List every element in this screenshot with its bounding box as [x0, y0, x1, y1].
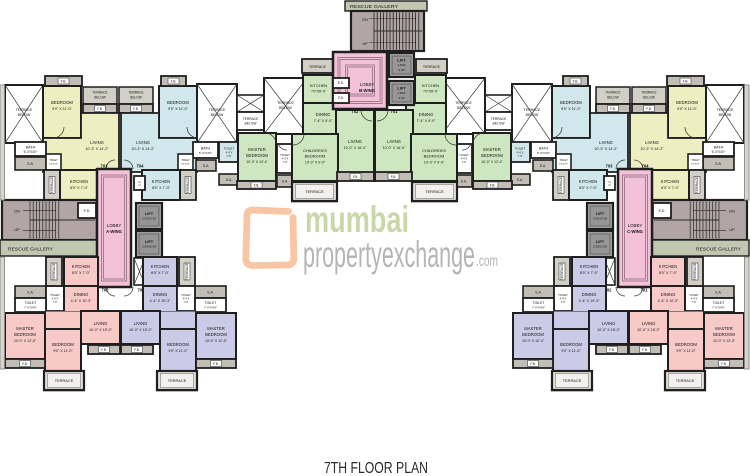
- svg-text:E.D.: E.D.: [338, 81, 344, 85]
- svg-text:DINING: DINING: [74, 292, 89, 297]
- svg-text:10'-0" X 12'-0": 10'-0" X 12'-0": [713, 339, 736, 343]
- svg-text:BELOW: BELOW: [607, 96, 619, 100]
- svg-text:UP: UP: [362, 42, 368, 46]
- svg-text:CHILDREN'S: CHILDREN'S: [422, 148, 446, 153]
- svg-text:7'-0"X4'0": 7'-0"X4'0": [204, 306, 217, 310]
- svg-text:KITCHEN: KITCHEN: [70, 179, 88, 184]
- svg-text:TERRACE: TERRACE: [128, 91, 143, 95]
- svg-text:7'-6": 7'-6": [692, 301, 697, 304]
- svg-text:TERRACE: TERRACE: [186, 176, 190, 194]
- svg-text:UP: UP: [729, 228, 735, 232]
- svg-text:4'-4" X 10'-3": 4'-4" X 10'-3": [71, 299, 92, 303]
- svg-text:propertyexchange: propertyexchange: [303, 234, 475, 275]
- svg-text:10'-0" X 12'-4": 10'-0" X 12'-4": [481, 160, 503, 164]
- svg-text:8'0" X 7'-0": 8'0" X 7'-0": [580, 271, 599, 275]
- svg-text:KITCHEN: KITCHEN: [580, 264, 598, 269]
- svg-text:S.A.: S.A.: [535, 290, 542, 294]
- svg-text:DINING: DINING: [582, 292, 597, 297]
- svg-text:TERRACE: TERRACE: [52, 262, 56, 280]
- svg-text:5'-0"X4'0": 5'-0"X4'0": [537, 151, 550, 155]
- svg-text:7'-6": 7'-6": [462, 161, 467, 164]
- svg-text:LOBBY: LOBBY: [360, 82, 375, 87]
- svg-text:4'-6"X: 4'-6"X: [226, 150, 233, 154]
- svg-text:F.B.: F.B.: [530, 362, 536, 366]
- svg-text:S.A.: S.A.: [282, 179, 288, 183]
- svg-text:7'-6": 7'-6": [561, 301, 566, 304]
- svg-text:LIFT: LIFT: [596, 211, 605, 216]
- svg-text:LIVING: LIVING: [599, 140, 613, 145]
- svg-text:MASTER: MASTER: [483, 147, 500, 152]
- svg-text:TERRACE: TERRACE: [305, 189, 324, 194]
- svg-text:BEDROOM: BEDROOM: [14, 332, 36, 337]
- svg-text:7'-0"X4'0": 7'-0"X4'0": [712, 306, 725, 310]
- svg-text:TERRACE: TERRACE: [309, 65, 327, 69]
- svg-text:F.B.: F.B.: [573, 79, 579, 83]
- svg-text:10'-0" X 15'-0": 10'-0" X 15'-0": [637, 328, 660, 332]
- svg-text:5'-0"X4'0": 5'-0"X4'0": [712, 150, 726, 154]
- svg-text:S.A.: S.A.: [715, 290, 722, 294]
- svg-text:F.B.: F.B.: [61, 79, 67, 83]
- svg-text:TERRACE: TERRACE: [717, 108, 734, 112]
- svg-text:704: 704: [642, 164, 650, 169]
- svg-text:MASTER: MASTER: [248, 147, 265, 152]
- svg-text:10'-0" X 15'-0": 10'-0" X 15'-0": [89, 328, 112, 332]
- svg-text:DINING: DINING: [153, 292, 168, 297]
- svg-text:LIFT: LIFT: [397, 58, 406, 63]
- svg-text:LIFT: LIFT: [145, 239, 154, 244]
- svg-text:10'-3" X 14'-2": 10'-3" X 14'-2": [131, 147, 155, 151]
- svg-text:TOILET: TOILET: [181, 159, 190, 162]
- svg-text:BELOW: BELOW: [245, 121, 258, 125]
- svg-text:KITCHEN: KITCHEN: [152, 179, 170, 184]
- svg-text:F.B.: F.B.: [609, 348, 615, 352]
- svg-text:5'-0"X4'0": 5'-0"X4'0": [24, 150, 38, 154]
- svg-text:KITCHEN: KITCHEN: [72, 264, 90, 269]
- svg-text:7'-4" X 9'-0": 7'-4" X 9'-0": [314, 119, 333, 123]
- svg-text:TERRACE: TERRACE: [641, 91, 656, 95]
- svg-text:TOILET: TOILET: [25, 301, 37, 305]
- svg-text:4'-4" X 10'-3": 4'-4" X 10'-3": [150, 299, 171, 303]
- svg-text:10'-3" X 14'-2": 10'-3" X 14'-2": [640, 147, 664, 151]
- svg-text:F.B.: F.B.: [254, 183, 260, 187]
- svg-text:702: 702: [102, 288, 110, 293]
- svg-text:7'-4" X 9'-0": 7'-4" X 9'-0": [417, 119, 436, 123]
- svg-text:9'0" X 11'-0": 9'0" X 11'-0": [561, 349, 581, 353]
- svg-text:10'-0" X 12'-4": 10'-0" X 12'-4": [246, 160, 268, 164]
- svg-text:BEDROOM: BEDROOM: [481, 153, 503, 158]
- svg-text:10'-3" X 14'-2": 10'-3" X 14'-2": [594, 147, 618, 151]
- svg-text:TERRACE: TERRACE: [92, 91, 107, 95]
- svg-text:F.B.: F.B.: [353, 175, 359, 179]
- svg-text:S.A.: S.A.: [27, 162, 34, 166]
- svg-text:LIVING: LIVING: [387, 139, 401, 144]
- svg-text:10'-0" X 12'-0": 10'-0" X 12'-0": [205, 339, 228, 343]
- svg-text:9'0" X 11'-0": 9'0" X 11'-0": [677, 107, 697, 111]
- svg-text:9'0" X 11'-0": 9'0" X 11'-0": [168, 107, 188, 111]
- svg-text:F.B.: F.B.: [97, 107, 103, 111]
- svg-text:TOILET: TOILET: [224, 146, 235, 150]
- svg-text:DINING: DINING: [419, 112, 434, 117]
- svg-text:LIFT: LIFT: [596, 239, 605, 244]
- svg-text:7'0"X8'-0": 7'0"X8'-0": [311, 90, 327, 94]
- svg-text:TERRACE: TERRACE: [16, 108, 33, 112]
- svg-text:S.A.: S.A.: [461, 179, 467, 183]
- svg-text:BELOW: BELOW: [493, 121, 506, 125]
- svg-text:10'-0" X 12'-0": 10'-0" X 12'-0": [522, 339, 545, 343]
- svg-text:TERRACE: TERRACE: [55, 378, 74, 383]
- svg-text:BELOW: BELOW: [526, 113, 539, 117]
- svg-text:F.B.: F.B.: [134, 348, 140, 352]
- svg-text:10'-0" X 15'-0": 10'-0" X 15'-0": [129, 328, 152, 332]
- svg-text:BEDROOM: BEDROOM: [51, 100, 73, 105]
- svg-text:S.A.: S.A.: [715, 162, 722, 166]
- svg-text:7'-0"X4'0": 7'-0"X4'0": [24, 306, 37, 310]
- svg-text:7'-6": 7'-6": [184, 301, 189, 304]
- svg-text:LOBBY: LOBBY: [107, 223, 122, 228]
- svg-text:LOBBY: LOBBY: [628, 223, 643, 228]
- svg-text:E.D.: E.D.: [608, 180, 612, 186]
- svg-text:7'-6": 7'-6": [226, 154, 231, 158]
- svg-text:S.A.: S.A.: [207, 290, 214, 294]
- svg-text:BEDROOM: BEDROOM: [675, 342, 697, 347]
- svg-text:E.D.: E.D.: [138, 180, 142, 186]
- svg-text:TERRACE: TERRACE: [524, 108, 541, 112]
- svg-text:TERRACE: TERRACE: [168, 378, 187, 383]
- svg-text:LIVING: LIVING: [602, 321, 616, 326]
- svg-text:TOILET: TOILET: [50, 293, 60, 297]
- svg-text:DINING: DINING: [316, 112, 331, 117]
- svg-text:2.00: 2.00: [398, 96, 404, 100]
- svg-text:RESCUE GALLERY: RESCUE GALLERY: [696, 247, 741, 252]
- svg-text:F.B.: F.B.: [391, 175, 397, 179]
- svg-text:F.B.: F.B.: [683, 79, 689, 83]
- svg-text:TOILET: TOILET: [49, 159, 58, 162]
- svg-text:F.B.: F.B.: [171, 79, 177, 83]
- svg-text:BATH: BATH: [539, 146, 549, 150]
- svg-text:KITCHEN: KITCHEN: [661, 179, 679, 184]
- svg-text:8'0" X 7'-0": 8'0" X 7'-0": [661, 186, 680, 190]
- svg-text:BELOW: BELOW: [643, 96, 655, 100]
- svg-text:TERRACE: TERRACE: [277, 101, 294, 105]
- svg-text:TERRACE: TERRACE: [695, 176, 699, 194]
- svg-text:TERRACE: TERRACE: [423, 65, 441, 69]
- svg-text:B-WING: B-WING: [359, 88, 375, 93]
- svg-text:TERRACE: TERRACE: [676, 378, 695, 383]
- svg-text:F.B.: F.B.: [22, 362, 28, 366]
- svg-text:701: 701: [391, 109, 399, 114]
- svg-text:LIVING: LIVING: [134, 321, 148, 326]
- svg-text:BATH: BATH: [26, 145, 36, 149]
- svg-text:BELOW: BELOW: [211, 113, 224, 117]
- svg-text:7'-6": 7'-6": [283, 161, 288, 164]
- svg-text:C-WING: C-WING: [627, 229, 643, 234]
- svg-text:703: 703: [606, 164, 614, 169]
- svg-text:2.00: 2.00: [398, 68, 404, 72]
- svg-text:TOILET: TOILET: [689, 293, 699, 297]
- svg-text:LIVING: LIVING: [90, 140, 104, 145]
- svg-text:8'0" X 7'-0": 8'0" X 7'-0": [579, 186, 598, 190]
- svg-text:9'0" X 11'-0": 9'0" X 11'-0": [168, 349, 188, 353]
- svg-text:TOILET: TOILET: [181, 293, 191, 297]
- svg-text:RESCUE GALLERY: RESCUE GALLERY: [350, 4, 398, 9]
- svg-text:S.A.: S.A.: [203, 164, 209, 168]
- svg-text:MASTER: MASTER: [16, 326, 33, 331]
- svg-text:9'0" X 11'-0": 9'0" X 11'-0": [561, 107, 581, 111]
- svg-text:UP: UP: [14, 228, 20, 232]
- svg-text:F.B.: F.B.: [101, 348, 107, 352]
- svg-text:TERRACE: TERRACE: [560, 262, 564, 280]
- svg-text:7'-6": 7'-6": [53, 301, 58, 304]
- svg-text:10'-0" X 15'-0": 10'-0" X 15'-0": [597, 328, 620, 332]
- svg-text:KITCHEN: KITCHEN: [151, 264, 169, 269]
- svg-text:4'6"X3'4": 4'6"X3'4": [559, 164, 568, 166]
- svg-text:701: 701: [641, 288, 649, 293]
- svg-text:TOILET: TOILET: [559, 159, 568, 162]
- svg-text:S.A.: S.A.: [540, 164, 546, 168]
- svg-text:10'-0" X 16'-0": 10'-0" X 16'-0": [383, 146, 406, 150]
- svg-text:BEDROOM: BEDROOM: [713, 332, 735, 337]
- svg-text:TOILET: TOILET: [280, 153, 290, 157]
- svg-text:BEDROOM: BEDROOM: [424, 154, 445, 159]
- svg-text:BATH: BATH: [201, 146, 211, 150]
- svg-text:4'-4" X 10'-3": 4'-4" X 10'-3": [579, 299, 600, 303]
- svg-text:BEDROOM: BEDROOM: [167, 342, 189, 347]
- svg-text:TERRACE: TERRACE: [455, 101, 472, 105]
- svg-text:TOILET: TOILET: [205, 301, 217, 305]
- svg-text:F.D.: F.D.: [338, 96, 344, 100]
- svg-text:7'-0"X4'0": 7'-0"X4'0": [532, 306, 545, 310]
- svg-text:4'-4" X 10'-3": 4'-4" X 10'-3": [658, 299, 679, 303]
- svg-text:TERRACE: TERRACE: [50, 176, 54, 194]
- svg-text:S.A.: S.A.: [226, 178, 232, 182]
- svg-text:LIFT: LIFT: [397, 86, 406, 91]
- svg-text:TERRACE: TERRACE: [559, 176, 563, 194]
- svg-text:1.80X: 1.80X: [397, 63, 405, 67]
- svg-text:LIVING: LIVING: [136, 140, 150, 145]
- svg-text:LIVING: LIVING: [642, 321, 656, 326]
- svg-text:F.B.: F.B.: [646, 107, 652, 111]
- svg-text:DN: DN: [362, 18, 368, 22]
- svg-text:BEDROOM: BEDROOM: [560, 100, 582, 105]
- svg-text:LIVING: LIVING: [348, 139, 362, 144]
- svg-text:TERRACE: TERRACE: [209, 108, 226, 112]
- svg-text:TOILET: TOILET: [459, 153, 469, 157]
- svg-text:MASTER: MASTER: [715, 326, 732, 331]
- svg-text:F.B.: F.B.: [721, 362, 727, 366]
- svg-text:5'-0"X4'0": 5'-0"X4'0": [199, 151, 212, 155]
- svg-text:TOILET: TOILET: [533, 301, 545, 305]
- svg-text:KITCHEN: KITCHEN: [310, 83, 328, 88]
- svg-text:2.00X2.00: 2.00X2.00: [593, 217, 607, 221]
- svg-text:2.00X2.00: 2.00X2.00: [142, 245, 156, 249]
- svg-text:KITCHEN: KITCHEN: [659, 264, 677, 269]
- svg-text:KITCHEN: KITCHEN: [422, 83, 440, 88]
- svg-text:2.00X2.00: 2.00X2.00: [142, 217, 156, 221]
- svg-text:4'-6"X: 4'-6"X: [517, 150, 524, 154]
- svg-text:7'0"X8'-0": 7'0"X8'-0": [423, 90, 439, 94]
- svg-text:F.D.: F.D.: [659, 209, 666, 213]
- svg-text:TOILET: TOILET: [558, 293, 568, 297]
- svg-text:BEDROOM: BEDROOM: [246, 153, 268, 158]
- svg-text:10'-3" X 9'-0": 10'-3" X 9'-0": [305, 160, 326, 164]
- svg-text:4'6"X3'4": 4'6"X3'4": [49, 164, 58, 166]
- svg-text:8'0" X 7'-0": 8'0" X 7'-0": [151, 271, 170, 275]
- svg-text:8'0" X 7'-0": 8'0" X 7'-0": [70, 186, 89, 190]
- svg-text:1.80X: 1.80X: [397, 91, 405, 95]
- svg-text:BELOW: BELOW: [279, 106, 292, 110]
- svg-text:BELOW: BELOW: [719, 113, 732, 117]
- svg-text:4'6"X3'4": 4'6"X3'4": [181, 164, 190, 166]
- svg-text:DINING: DINING: [661, 292, 676, 297]
- svg-text:BATH: BATH: [714, 145, 724, 149]
- svg-text:F.B.: F.B.: [213, 362, 219, 366]
- svg-text:TERRACE: TERRACE: [693, 262, 697, 280]
- svg-text:F.B.: F.B.: [133, 107, 139, 111]
- svg-text:BELOW: BELOW: [18, 113, 31, 117]
- svg-text:TERRACE: TERRACE: [185, 262, 189, 280]
- svg-text:.com: .com: [476, 253, 498, 270]
- svg-text:LIFT: LIFT: [145, 211, 154, 216]
- svg-text:7'-6": 7'-6": [517, 154, 522, 158]
- svg-text:9'0" X 11'-0": 9'0" X 11'-0": [676, 349, 696, 353]
- svg-text:TERRACE: TERRACE: [563, 378, 582, 383]
- svg-text:BELOW: BELOW: [457, 106, 470, 110]
- svg-text:BEDROOM: BEDROOM: [305, 154, 326, 159]
- svg-text:BEDROOM: BEDROOM: [205, 332, 227, 337]
- svg-text:BEDROOM: BEDROOM: [522, 332, 544, 337]
- svg-text:TOILET: TOILET: [691, 159, 700, 162]
- svg-text:A-WING: A-WING: [106, 229, 122, 234]
- svg-text:KITCHEN: KITCHEN: [579, 179, 597, 184]
- svg-text:DN: DN: [14, 210, 20, 214]
- svg-text:TERRACE: TERRACE: [605, 91, 620, 95]
- svg-text:F.B.: F.B.: [610, 107, 616, 111]
- svg-text:LIVING: LIVING: [645, 140, 659, 145]
- svg-text:4'6"X3'4": 4'6"X3'4": [691, 164, 700, 166]
- svg-text:703: 703: [101, 164, 109, 169]
- svg-text:TERRACE: TERRACE: [425, 189, 444, 194]
- svg-text:8'0" X 7'-0": 8'0" X 7'-0": [152, 186, 171, 190]
- svg-text:LIVING: LIVING: [94, 321, 108, 326]
- svg-text:BEDROOM: BEDROOM: [52, 342, 74, 347]
- svg-text:702: 702: [352, 109, 360, 114]
- svg-text:10'-3" X 14'-2": 10'-3" X 14'-2": [85, 147, 109, 151]
- svg-text:8'0" X 7'-0": 8'0" X 7'-0": [659, 271, 678, 275]
- svg-text:BEDROOM: BEDROOM: [167, 100, 189, 105]
- svg-text:BELOW: BELOW: [130, 96, 142, 100]
- svg-text:TOILET: TOILET: [713, 301, 725, 305]
- svg-text:MASTER: MASTER: [524, 326, 541, 331]
- svg-text:TOILET: TOILET: [515, 146, 526, 150]
- svg-text:7TH FLOOR PLAN: 7TH FLOOR PLAN: [324, 460, 428, 476]
- svg-text:9'0" X 11'-0": 9'0" X 11'-0": [53, 349, 73, 353]
- svg-text:S.A.: S.A.: [517, 178, 523, 182]
- svg-text:F.D.: F.D.: [84, 209, 91, 213]
- svg-text:DN: DN: [729, 210, 735, 214]
- svg-text:2.00X2.00: 2.00X2.00: [593, 245, 607, 249]
- svg-text:BELOW: BELOW: [94, 96, 106, 100]
- svg-text:BEDROOM: BEDROOM: [560, 342, 582, 347]
- svg-text:BEDROOM: BEDROOM: [676, 100, 698, 105]
- svg-text:F.B.: F.B.: [642, 348, 648, 352]
- svg-text:S.A.: S.A.: [27, 290, 34, 294]
- svg-text:CHILDREN'S: CHILDREN'S: [303, 148, 327, 153]
- svg-text:704: 704: [137, 164, 145, 169]
- svg-text:9'0" X 11'-0": 9'0" X 11'-0": [52, 107, 72, 111]
- svg-text:10'-0" X 12'-0": 10'-0" X 12'-0": [14, 339, 37, 343]
- svg-text:MASTER: MASTER: [207, 326, 224, 331]
- svg-text:10'-3" X 9'-0": 10'-3" X 9'-0": [424, 160, 445, 164]
- svg-text:RESCUE GALLERY: RESCUE GALLERY: [8, 247, 53, 252]
- svg-text:F.B.: F.B.: [490, 183, 496, 187]
- svg-text:10'-0" X 16'-0": 10'-0" X 16'-0": [344, 146, 367, 150]
- svg-text:8'0" X 7'-0": 8'0" X 7'-0": [72, 271, 91, 275]
